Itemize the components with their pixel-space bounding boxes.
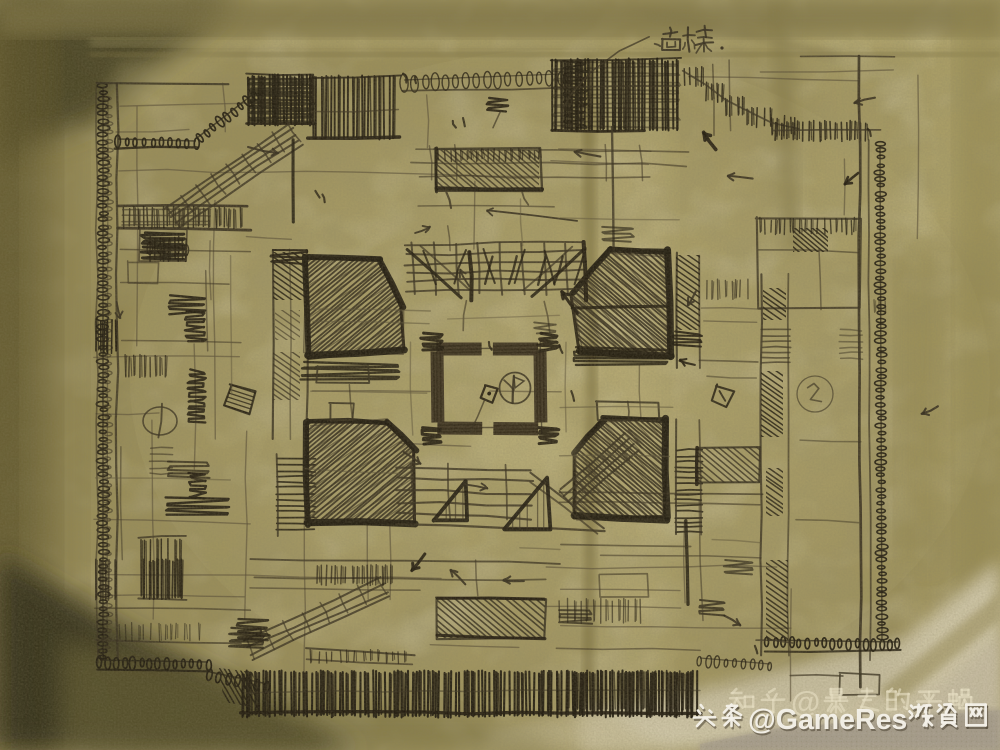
svg-text:@GameRes: @GameRes	[748, 704, 907, 736]
